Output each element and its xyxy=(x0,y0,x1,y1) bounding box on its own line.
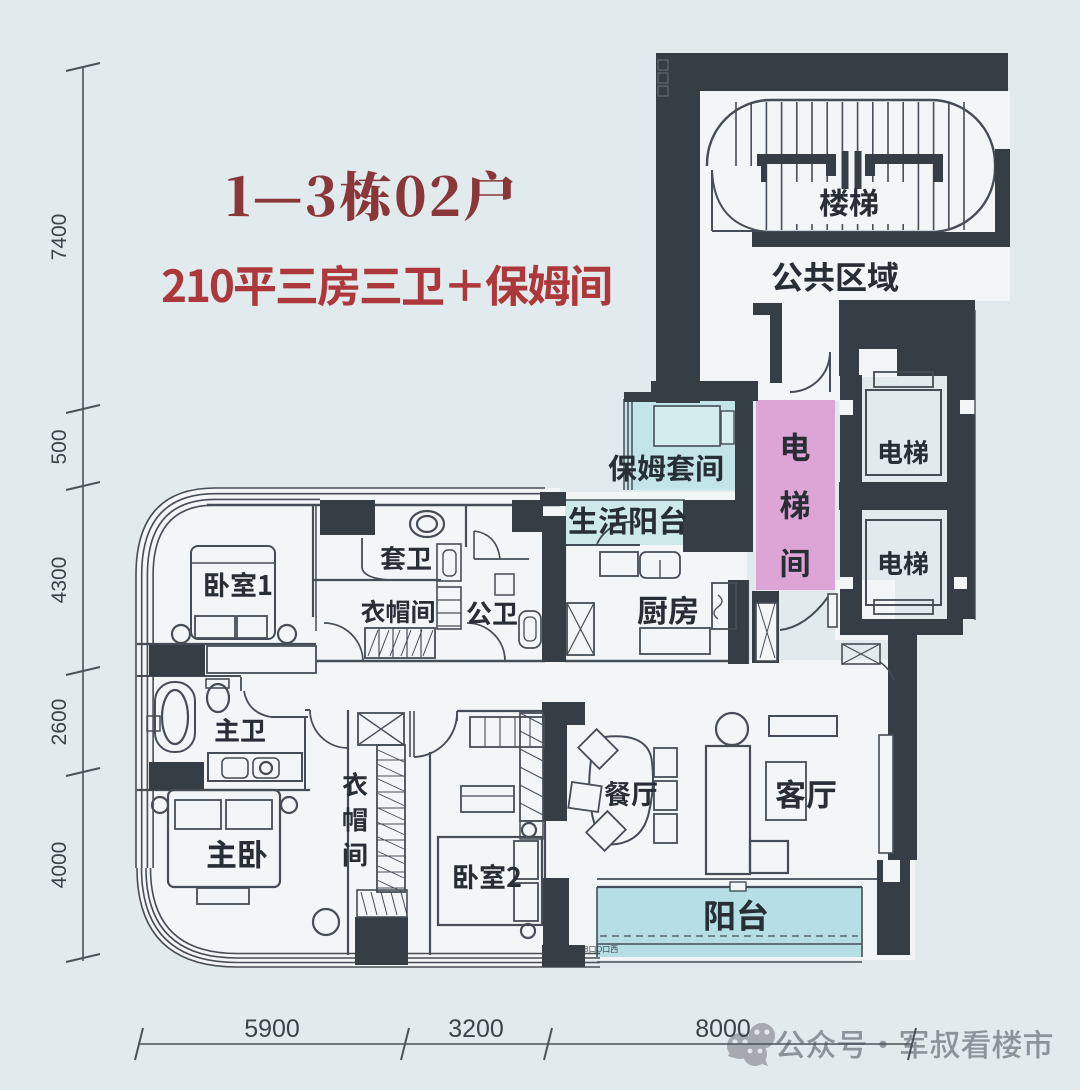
svg-text:3200: 3200 xyxy=(448,1015,504,1043)
svg-text:8口D口西: 8口D口西 xyxy=(584,945,618,954)
svg-text:2600: 2600 xyxy=(48,699,71,746)
svg-text:8000: 8000 xyxy=(695,1015,751,1043)
svg-text:4300: 4300 xyxy=(48,557,71,604)
svg-text:5900: 5900 xyxy=(244,1015,300,1043)
svg-text:4000: 4000 xyxy=(48,842,71,889)
svg-text:7400: 7400 xyxy=(48,214,71,261)
svg-text:500: 500 xyxy=(48,429,71,464)
